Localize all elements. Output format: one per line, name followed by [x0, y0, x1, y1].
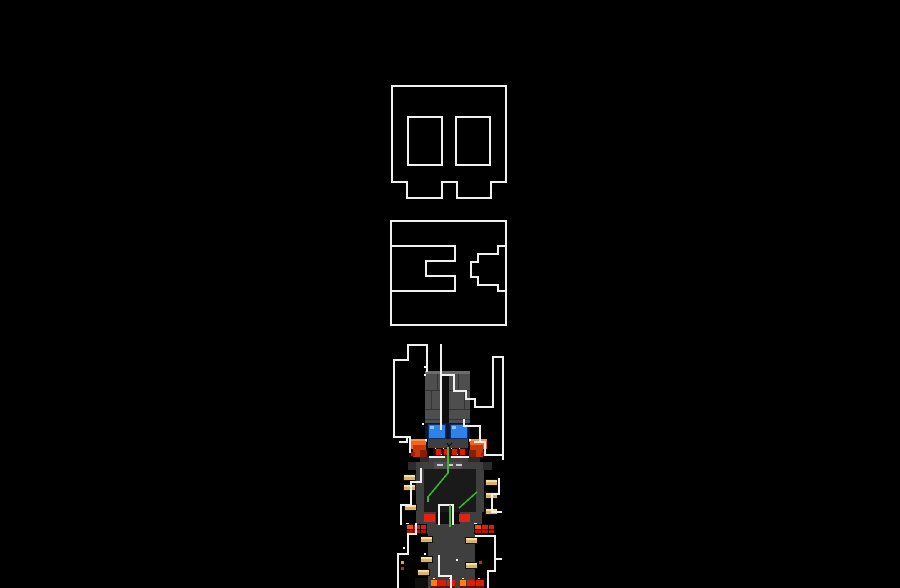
robot-collar-lights [437, 464, 462, 466]
game-canvas[interactable] [0, 0, 900, 588]
game-viewport[interactable] [0, 0, 900, 588]
robot-head-highlight [425, 371, 470, 374]
